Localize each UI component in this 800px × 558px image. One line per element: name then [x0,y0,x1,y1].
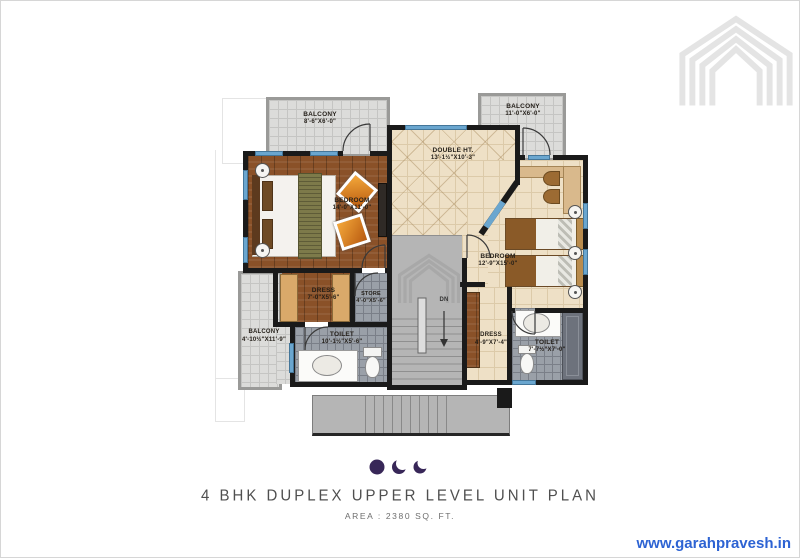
house-logo-icon [676,13,796,107]
room-label-store: STORE4'-0"X5'-6" [351,291,391,305]
chair-2 [543,189,560,204]
wall [387,125,392,387]
window [512,380,536,385]
pillow-1 [262,181,273,211]
bed-runner [298,173,322,259]
bedside-lamp-4 [568,246,582,260]
wash-basin-left [312,355,342,376]
room-label-balcony-top-right: BALCONY11'-0"X6'-0" [490,103,556,119]
projection-line-left [215,150,216,390]
room-label-balcony-bottom-left: BALCONY4'-10½"X11'-9" [232,329,296,345]
window [528,155,550,160]
room-label-bedroom-left: BEDROOM14'-0"X11'-0" [320,197,384,213]
stairs-dn-label: DN [435,297,453,305]
website-link[interactable]: www.garahpravesh.in [634,534,795,553]
window [583,203,588,229]
window [255,151,283,156]
bedside-lamp-3 [568,205,582,219]
chair-1 [543,171,560,186]
window [405,125,467,130]
wall [273,268,278,327]
room-label-balcony-top-left: BALCONY8'-6"X6'-0" [285,111,355,127]
floor-plan: BALCONY8'-6"X6'-0" BALCONY11'-0"X6'-0" D… [210,85,602,437]
window [310,151,338,156]
single-bed-2-pillow [558,256,572,286]
room-label-dress-left: DRESS7'-0"X5'-6" [296,287,351,303]
wc-right-bowl [520,353,534,374]
external-staircase-steps [365,396,447,433]
wash-basin-right [523,313,550,333]
moon-phases-decoration [368,458,432,476]
window [243,237,248,263]
single-bed-1-pillow [558,219,572,249]
bedside-lamp-2 [255,243,270,258]
full-moon-icon [370,460,385,475]
wall [535,308,588,313]
wall [387,385,467,390]
plan-title: 4 BHK DUPLEX UPPER LEVEL UNIT PLAN [0,486,800,504]
window [243,170,248,200]
plan-area: AREA : 2380 SQ. FT. [0,511,800,521]
single-bed-1-blanket [506,219,536,249]
wall [328,322,391,327]
room-label-toilet-left: TOILET10'-1½"X5'-6" [312,331,372,347]
single-bed-1 [505,218,580,250]
bedside-lamp-1 [255,163,270,178]
room-label-dress-right: DRESS4'-9"X7'-4" [472,332,510,348]
wall [290,382,391,387]
stairwell-edge [391,235,462,236]
title-block: 4 BHK DUPLEX UPPER LEVEL UNIT PLAN AREA … [0,458,800,521]
wall [515,125,520,185]
window [289,343,294,373]
window [583,249,588,275]
external-staircase [312,395,510,436]
wc-left-bowl [365,356,380,378]
staircase-steps [391,312,462,385]
room-label-bedroom-right: BEDROOM12'-9"X15'-0" [466,253,530,269]
bedside-lamp-5 [568,285,582,299]
wall [462,258,467,390]
floor-plan-page: BALCONY8'-6"X6'-0" BALCONY11'-0"X6'-0" D… [0,0,800,558]
wall-stub-stairs [497,388,512,408]
room-label-toilet-right: TOILET7'-7½"X7'-0" [516,339,578,355]
room-label-double-height: DOUBLE HT.13'-1½"X10'-3" [413,147,493,163]
wall [243,268,362,273]
